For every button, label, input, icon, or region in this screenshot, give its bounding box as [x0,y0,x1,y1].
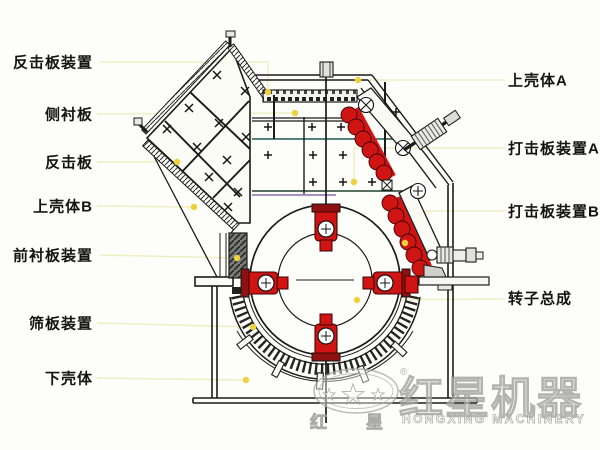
label-screen-plate-assembly: 筛板装置 [29,313,93,334]
label-impact-plate-assembly: 反击板装置 [13,52,93,73]
label-side-liner: 侧衬板 [45,104,93,125]
watermark-brand-en: HONGXING MACHINERY [402,412,586,426]
bolt-circle-icon [411,184,426,199]
star-icon: ★ [371,387,385,404]
label-blow-bar-assembly-a: 打击板装置A [508,138,600,159]
star-icon: ★ [340,379,365,410]
watermark-char-xing: 星 [366,408,383,433]
impact-crusher-structure-diagram: ★ ★ ★ ® 红星机器 HONGXING MACHINERY 红 星 反击板装… [0,0,600,450]
label-upper-casing-b: 上壳体B [33,196,93,217]
star-icon: ★ [322,387,336,404]
label-upper-casing-a: 上壳体A [508,70,568,91]
label-impact-plate: 反击板 [45,152,93,173]
label-lower-casing: 下壳体 [45,368,93,389]
watermark-char-hong: 红 [310,408,327,433]
chain-curtain [263,90,357,102]
label-blow-bar-assembly-b: 打击板装置B [508,201,600,222]
label-rotor-assembly: 转子总成 [508,288,572,309]
label-front-liner-assembly: 前衬板装置 [13,245,93,266]
hongxing-logo-watermark: ★ ★ ★ ® [314,367,408,413]
rotor-assembly-drawing [241,204,410,361]
